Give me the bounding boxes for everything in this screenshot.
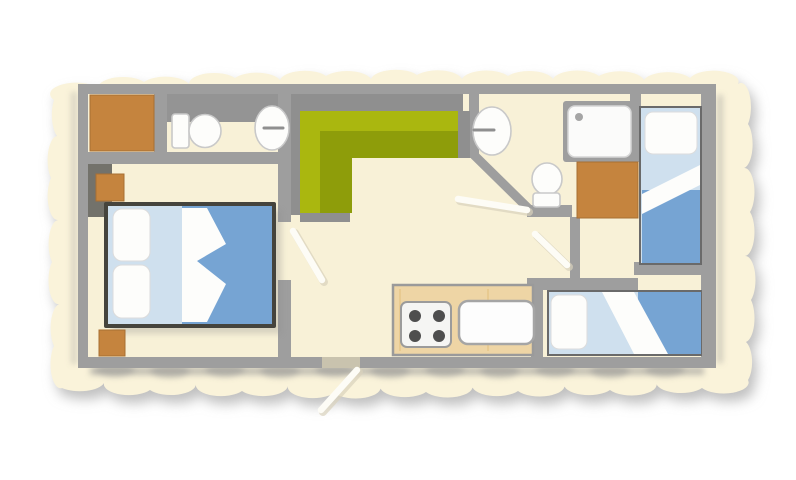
sofa-armrest-right (458, 111, 470, 158)
shower (563, 101, 636, 162)
toilet (532, 163, 562, 207)
wardrobe (577, 162, 638, 218)
sink (459, 301, 534, 344)
burner (409, 310, 421, 322)
burner (433, 330, 445, 342)
toilet-bowl (189, 115, 221, 148)
left-wall-shadow (71, 92, 77, 364)
floor-plan-image (0, 0, 796, 480)
sofa-backrest-top (291, 94, 463, 111)
pillow (113, 209, 150, 261)
nightstand-bottom (99, 330, 125, 356)
washbasin (473, 107, 511, 155)
wardrobe (90, 95, 154, 151)
wall-wardrobe-wc (154, 84, 167, 152)
double-bed (104, 202, 276, 328)
floor-plan-page (0, 0, 796, 480)
right-wall-shadow (717, 95, 723, 363)
wall-kids-hall (527, 278, 638, 290)
nightstand-top (96, 174, 124, 201)
pillow (645, 112, 697, 154)
single-bed-horizontal (548, 291, 701, 355)
washbasin (255, 106, 289, 150)
single-bed-vertical (640, 107, 701, 264)
hob (401, 302, 451, 347)
toilet-bowl (532, 163, 562, 195)
pillow (551, 295, 587, 349)
burner (433, 310, 445, 322)
toilet-tank (533, 193, 560, 207)
wall-below-wardrobe (570, 217, 580, 280)
pillow (113, 265, 150, 318)
sofa-armrest-bottom (300, 213, 350, 222)
shower-drain (575, 113, 583, 121)
burner (409, 330, 421, 342)
kids-bedroom-bottom (548, 291, 701, 355)
kitchen (393, 285, 534, 355)
hob-top (401, 302, 451, 347)
toilet-tank (172, 114, 189, 148)
entrance-threshold (322, 357, 360, 368)
sofa-backrest-left (291, 94, 300, 215)
toilet (172, 114, 221, 148)
wall-bedroom-top (88, 152, 291, 164)
